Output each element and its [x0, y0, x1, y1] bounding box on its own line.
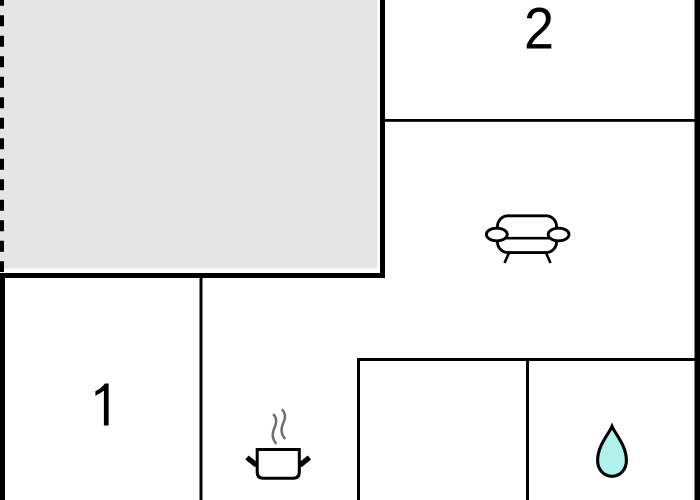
svg-text:2: 2 — [524, 0, 554, 61]
